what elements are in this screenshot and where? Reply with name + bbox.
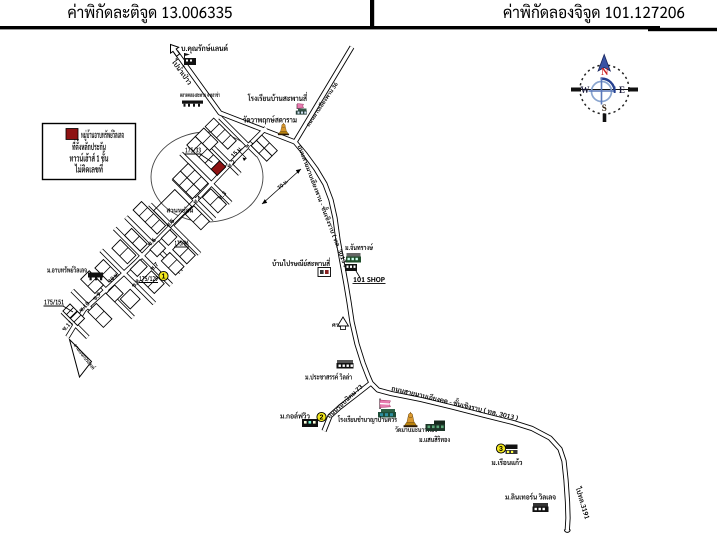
- svg-text:W: W: [581, 85, 590, 95]
- svg-text:2: 2: [320, 415, 324, 422]
- svg-text:N: N: [601, 67, 609, 78]
- svg-text:1: 1: [162, 274, 166, 281]
- svg-text:E: E: [619, 85, 625, 95]
- svg-text:3: 3: [499, 446, 503, 453]
- svg-text:S: S: [602, 103, 607, 113]
